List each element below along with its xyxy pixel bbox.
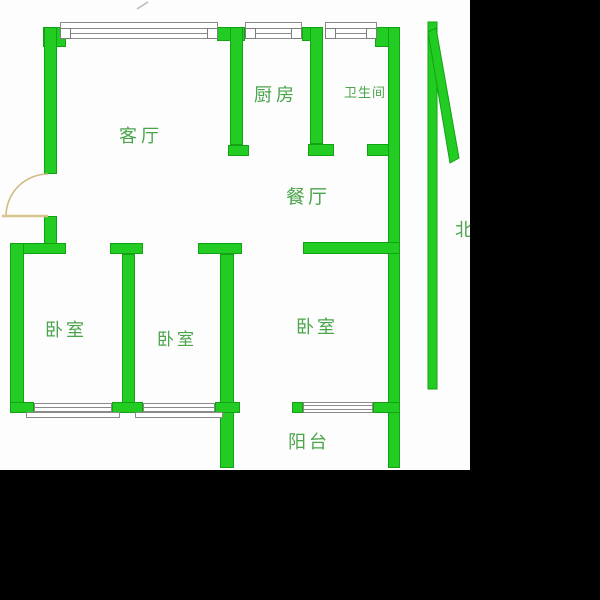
wall-bottom-right-seg xyxy=(373,402,400,413)
label-north: 北 xyxy=(455,221,470,242)
label-balcony: 阳台 xyxy=(288,433,330,454)
window-bedroom2-bottom xyxy=(143,403,215,419)
label-dining-room: 餐厅 xyxy=(286,187,330,209)
north-arrow xyxy=(420,18,466,392)
label-kitchen: 厨房 xyxy=(254,86,298,107)
wall-bed1-bed2-divider xyxy=(122,254,135,413)
wall-left-upper xyxy=(44,27,57,174)
wall-balcony-window-cap xyxy=(292,402,303,413)
window-end-cap xyxy=(366,28,377,39)
floor-plan: 客厅 厨房 卫生间 餐厅 卧室 卧室 卧室 阳台 北 xyxy=(0,0,470,470)
wall-dining-south xyxy=(303,242,400,254)
window-end-cap xyxy=(207,28,218,39)
screenshot-root: 客厅 厨房 卫生间 餐厅 卧室 卧室 卧室 阳台 北 xyxy=(0,0,600,600)
wall-kitchen-left xyxy=(230,27,243,145)
window-glazing xyxy=(60,28,218,39)
label-bedroom-3: 卧室 xyxy=(296,318,338,339)
label-bedroom-1: 卧室 xyxy=(45,321,87,342)
label-bathroom: 卫生间 xyxy=(344,87,386,102)
window-end-cap xyxy=(245,28,256,39)
window-frame xyxy=(26,412,120,418)
window-balcony xyxy=(303,402,373,413)
label-bedroom-2: 卧室 xyxy=(157,331,197,351)
wall-bed1-t-bar xyxy=(110,243,143,254)
window-living-top xyxy=(60,22,218,39)
wall-divider-cap xyxy=(308,144,334,156)
label-living-room: 客厅 xyxy=(119,127,163,148)
wall-kitchen-left-cap xyxy=(228,145,249,156)
window-end-cap xyxy=(325,28,336,39)
wall-bedroom1-left xyxy=(10,243,24,413)
window-glazing xyxy=(34,403,112,412)
window-frame xyxy=(135,412,223,418)
window-end-cap xyxy=(60,28,71,39)
window-kitchen-top xyxy=(245,22,302,39)
window-end-cap xyxy=(291,28,302,39)
entry-door-arc xyxy=(0,168,60,222)
faint-mark-icon xyxy=(134,0,152,11)
wall-bed2-bed3-divider xyxy=(220,254,234,468)
window-bathroom-top xyxy=(325,22,377,39)
window-bedroom1-bottom xyxy=(34,403,112,419)
wall-kitchen-bath-divider xyxy=(310,27,323,144)
wall-bed2-t-bar xyxy=(198,243,242,254)
letterbox-bottom xyxy=(0,470,600,600)
wall-bathroom-door-stub xyxy=(367,144,390,156)
window-glazing xyxy=(143,403,215,412)
